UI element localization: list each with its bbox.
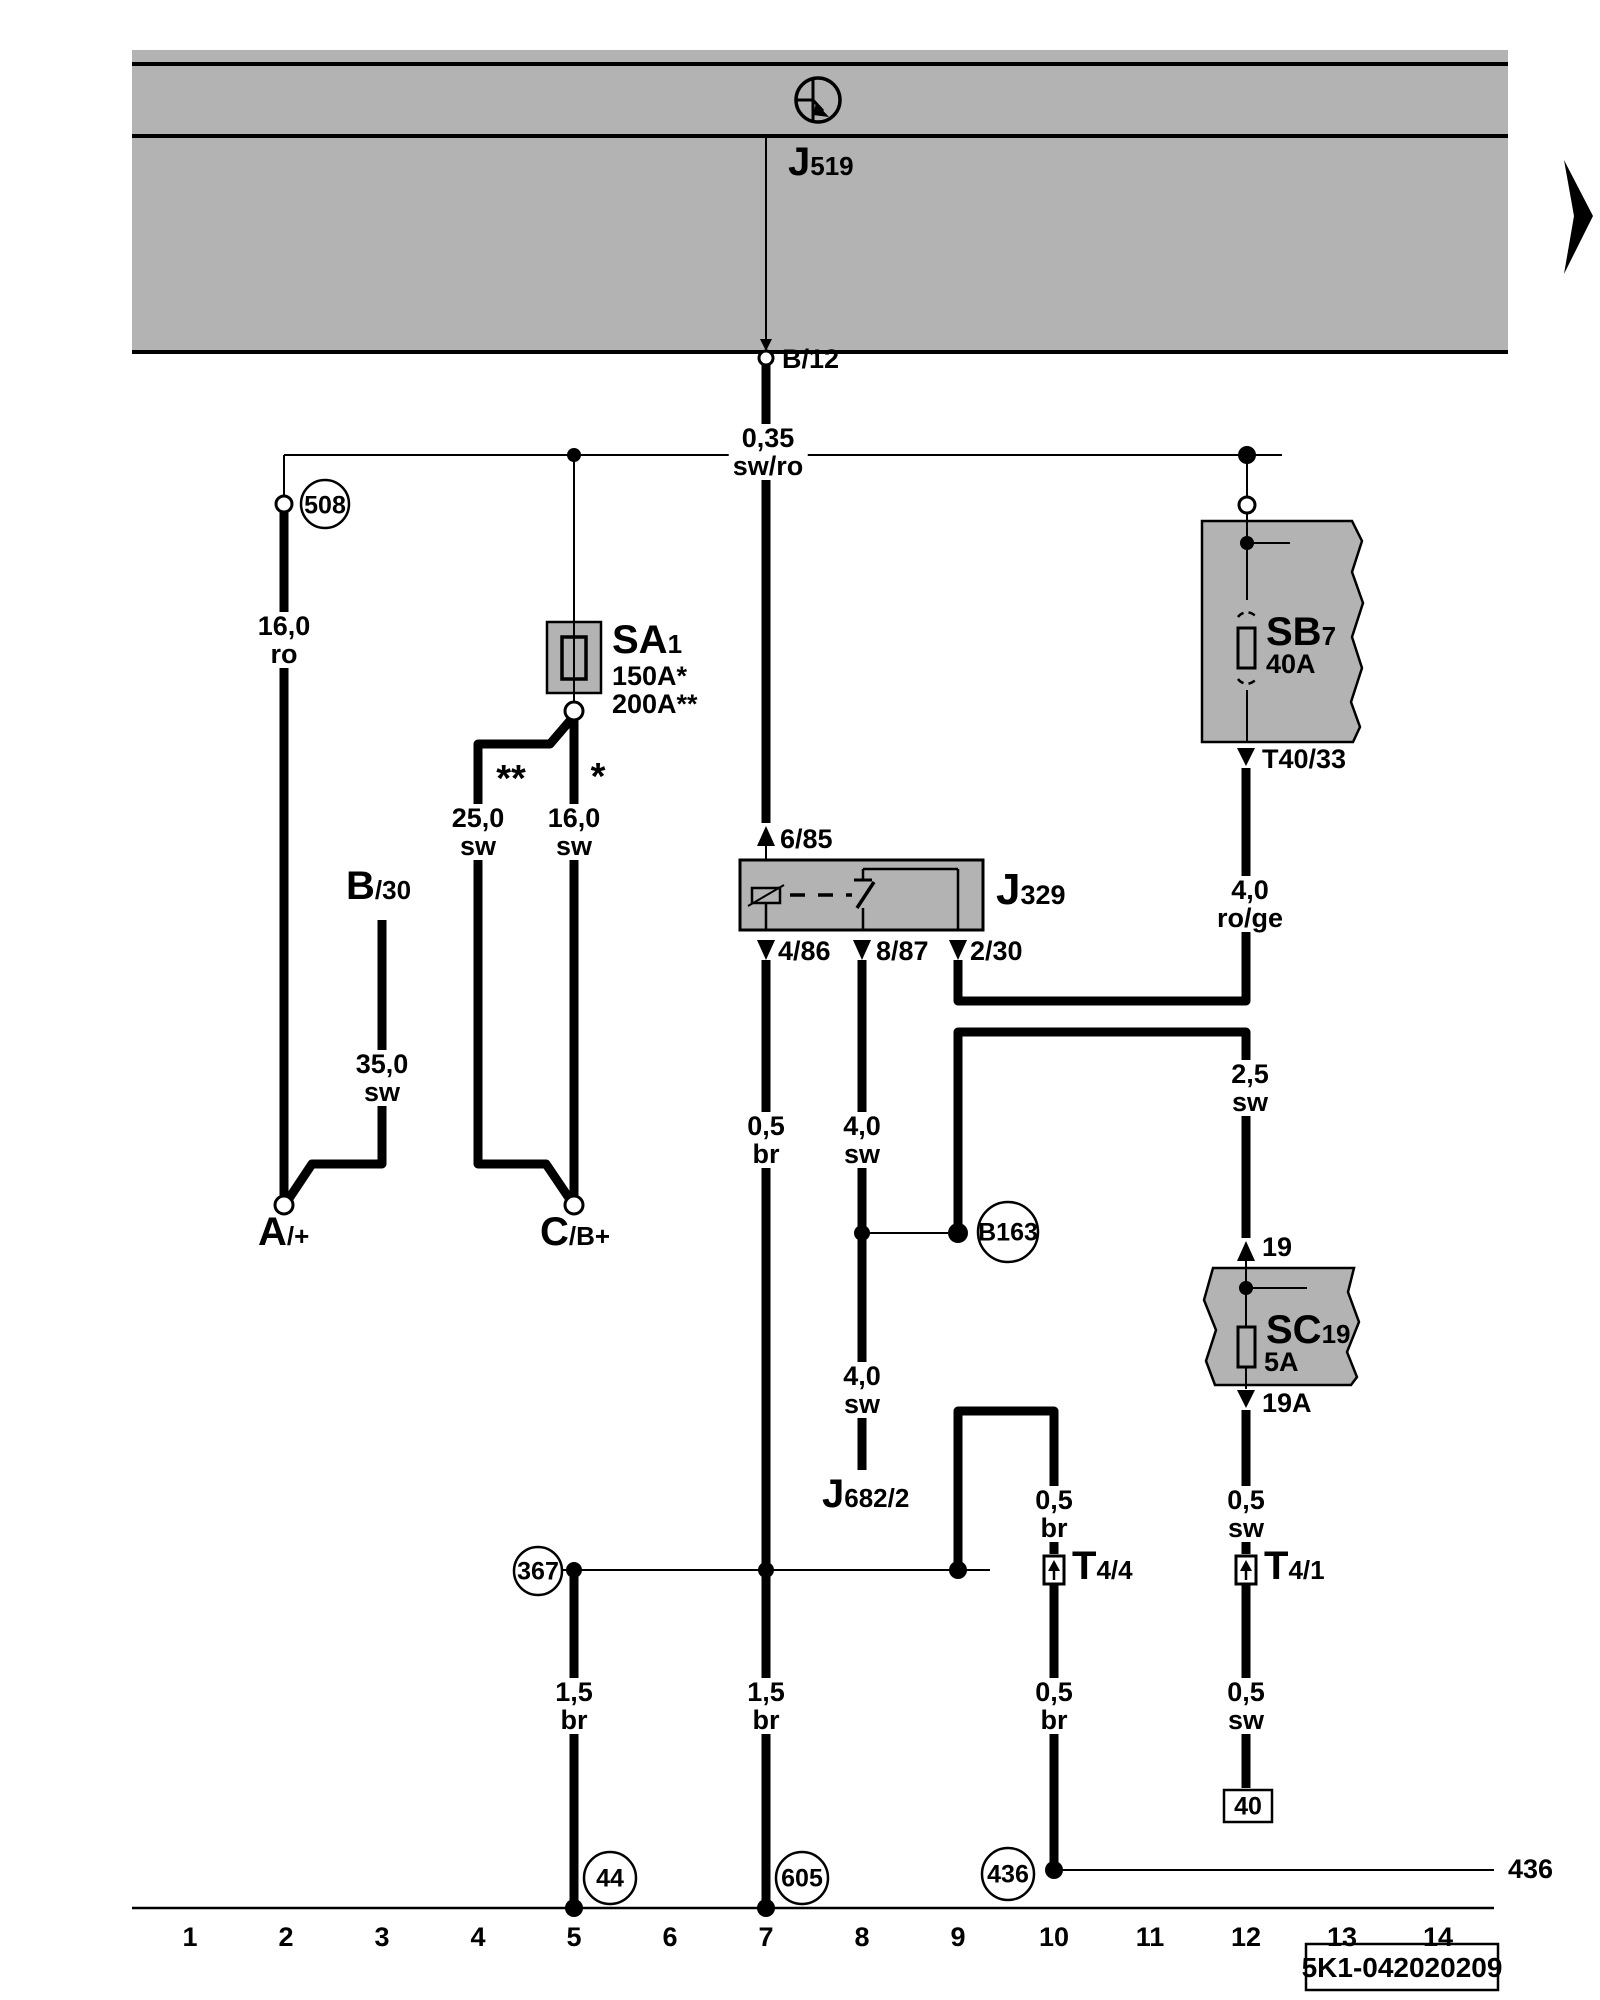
node-label-b163: B163 [978, 1221, 1038, 1246]
grid-number-12: 12 [1231, 1924, 1261, 1951]
wire-label-05sw: 0,5sw [1223, 1486, 1269, 1542]
rating-label-sa1-200a: 200A** [612, 690, 698, 718]
node-label-367: 367 [517, 1560, 559, 1585]
grid-number-3: 3 [374, 1924, 389, 1951]
wire-label-15br: 1,5br [551, 1678, 597, 1734]
connector-t41-icon [1236, 1556, 1256, 1584]
terminal-b12 [759, 351, 773, 365]
component-label-j682: J682/2 [822, 1474, 909, 1518]
terminal-label-19a: 19A [1262, 1390, 1312, 1417]
ground-label-40: 40 [1234, 1795, 1262, 1820]
terminal-label-b12: B/12 [782, 346, 839, 373]
star-double-marker: ** [496, 760, 526, 798]
rating-label-sb7: 40A [1266, 650, 1316, 678]
wire-label-16sw: 16,0sw [544, 804, 605, 860]
node-label-44: 44 [596, 1867, 624, 1892]
wire-label-05br-2: 0,5br [1031, 1486, 1077, 1542]
wiring-diagram-canvas [0, 0, 1600, 2000]
terminal-arrow-19a [1237, 1390, 1255, 1408]
component-label-j329: J329 [996, 868, 1066, 917]
grid-number-7: 7 [758, 1924, 773, 1951]
component-label-a-plus: A/+ [258, 1212, 309, 1256]
terminal-sa1-out [565, 702, 583, 720]
wire-label-15br-2: 1,5br [743, 1678, 789, 1734]
wire-label-16ro: 16,0ro [254, 612, 315, 668]
terminal-arrow-t4033 [1237, 748, 1255, 766]
grid-number-11: 11 [1136, 1924, 1165, 1951]
wire-b163-bus [958, 1032, 1246, 1228]
node-label-436: 436 [987, 1863, 1029, 1888]
wiring-diagram-page: J519 B/12 0,35sw/ro 508 16,0ro SA1 150A*… [0, 0, 1600, 2000]
terminal-label-486: 4/86 [778, 938, 831, 965]
connector-t44-icon [1044, 1556, 1064, 1584]
grid-number-2: 2 [278, 1924, 293, 1951]
node-label-605: 605 [781, 1867, 823, 1892]
rating-label-sc19: 5A [1264, 1348, 1299, 1376]
grid-number-9: 9 [950, 1924, 965, 1951]
terminal-arrow-887 [853, 940, 871, 960]
terminal-label-887: 8/87 [876, 938, 929, 965]
wire-label-25sw2: 2,5sw [1227, 1060, 1273, 1116]
continuation-arrow-icon [1564, 160, 1593, 274]
grid-number-4: 4 [470, 1924, 485, 1951]
star-single-marker: * [591, 758, 606, 796]
terminal-arrow-19 [1237, 1241, 1255, 1261]
component-label-t44: T4/4 [1072, 1546, 1133, 1590]
continuation-label-436: 436 [1508, 1856, 1553, 1883]
terminal-label-230: 2/30 [970, 938, 1023, 965]
wire-label-40sw: 4,0sw [839, 1112, 885, 1168]
terminal-label-t4033: T40/33 [1262, 746, 1346, 773]
grid-number-10: 10 [1039, 1924, 1069, 1951]
component-label-sa1: SA1 [612, 620, 682, 664]
terminal-label-19: 19 [1262, 1234, 1292, 1261]
grid-number-5: 5 [566, 1924, 581, 1951]
terminal-arrow-230 [949, 940, 967, 960]
grid-number-8: 8 [854, 1924, 869, 1951]
wire-label-25sw: 25,0sw [448, 804, 509, 860]
terminal-label-685: 6/85 [780, 826, 833, 853]
wire-label-035-swro: 0,35sw/ro [729, 424, 808, 480]
page-code-label: 5K1-042020209 [1302, 1954, 1503, 1982]
wire-label-40sw-2: 4,0sw [839, 1362, 885, 1418]
wire-label-05br-3: 0,5br [1031, 1678, 1077, 1734]
wire-label-35sw: 35,0sw [352, 1050, 413, 1106]
grid-number-13: 13 [1327, 1924, 1357, 1951]
wire-label-05sw-2: 0,5sw [1223, 1678, 1269, 1734]
component-label-b30: B/30 [346, 866, 411, 910]
grid-number-1: 1 [182, 1924, 197, 1951]
component-label-c-bplus: C/B+ [540, 1212, 610, 1256]
node-label-508: 508 [304, 494, 346, 519]
grid-number-6: 6 [662, 1924, 677, 1951]
terminal-arrow-685 [757, 826, 775, 846]
top-module-box [132, 50, 1508, 353]
terminal-508 [276, 496, 292, 512]
component-label-t41: T4/1 [1264, 1546, 1325, 1590]
relay-j329 [740, 845, 983, 930]
wire-label-05br: 0,5br [743, 1112, 789, 1168]
component-label-j519: J519 [788, 142, 854, 186]
grid-number-14: 14 [1423, 1924, 1453, 1951]
rating-label-sa1-150a: 150A* [612, 662, 687, 690]
fuse-sa1 [547, 455, 601, 704]
wire-label-40roge: 4,0ro/ge [1213, 876, 1287, 932]
terminal-sb7-in [1239, 497, 1255, 513]
terminal-arrow-486 [757, 940, 775, 960]
